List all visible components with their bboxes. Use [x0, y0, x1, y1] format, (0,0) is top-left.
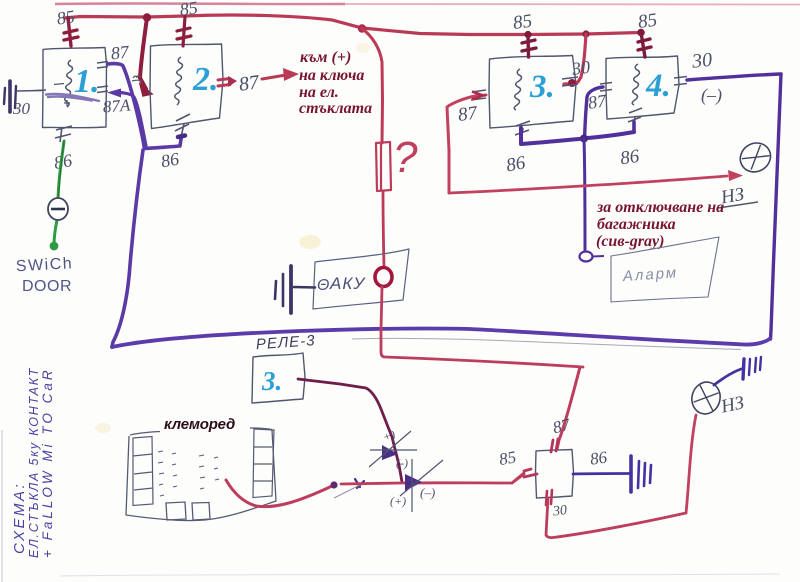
svg-text:85: 85 [178, 0, 199, 20]
svg-text:стъклата: стъклата [299, 100, 372, 117]
svg-text:87: 87 [238, 71, 262, 96]
svg-text:Θ: Θ [317, 277, 329, 294]
svg-text:?: ? [393, 133, 418, 182]
svg-text:(+): (+) [390, 494, 406, 508]
svg-text:85: 85 [55, 6, 76, 28]
svg-text:(сив-gray): (сив-gray) [596, 233, 664, 250]
svg-text:3.: 3. [529, 69, 555, 105]
svg-text:87: 87 [110, 42, 131, 64]
svg-text:85: 85 [512, 11, 534, 34]
svg-text:на ел.: на ел. [299, 84, 339, 101]
svg-text:85: 85 [498, 447, 518, 469]
svg-text:86: 86 [619, 146, 641, 170]
svg-text:СХЕМА:: СХЕМА: [11, 482, 28, 554]
svg-text:ЕЛ.СТЪКЛА 5ку КОНТАКТ: ЕЛ.СТЪКЛА 5ку КОНТАКТ [27, 367, 41, 558]
svg-text:30: 30 [570, 57, 592, 79]
svg-text:1.: 1. [74, 63, 100, 100]
svg-text:багажника: багажника [597, 216, 676, 233]
svg-text:към (+): към (+) [300, 49, 351, 66]
svg-text:за отключване на: за отключване на [596, 199, 724, 216]
svg-text:+ FaLLOW Mi TO CaR: + FaLLOW Mi TO CaR [40, 367, 55, 558]
svg-text:SWiCh: SWiCh [15, 255, 73, 275]
svg-text:86: 86 [159, 149, 180, 172]
svg-text:(–): (–) [420, 485, 435, 500]
svg-text:АКУ: АКУ [329, 274, 366, 293]
svg-text:(-): (-) [396, 456, 408, 470]
svg-text:клеморед: клеморед [164, 416, 235, 433]
svg-text:на ключа: на ключа [299, 67, 364, 84]
svg-text:30: 30 [551, 503, 567, 519]
svg-text:4.: 4. [645, 68, 671, 104]
svg-text:85: 85 [637, 10, 659, 33]
svg-text:3.: 3. [261, 366, 282, 396]
svg-text:30: 30 [690, 49, 713, 73]
svg-text:DOOR: DOOR [22, 278, 72, 295]
svg-text:(–): (–) [701, 85, 722, 106]
svg-text:2.: 2. [192, 61, 219, 98]
svg-text:30: 30 [12, 99, 31, 118]
svg-text:86: 86 [589, 447, 609, 468]
svg-text:87A: 87A [102, 96, 131, 117]
